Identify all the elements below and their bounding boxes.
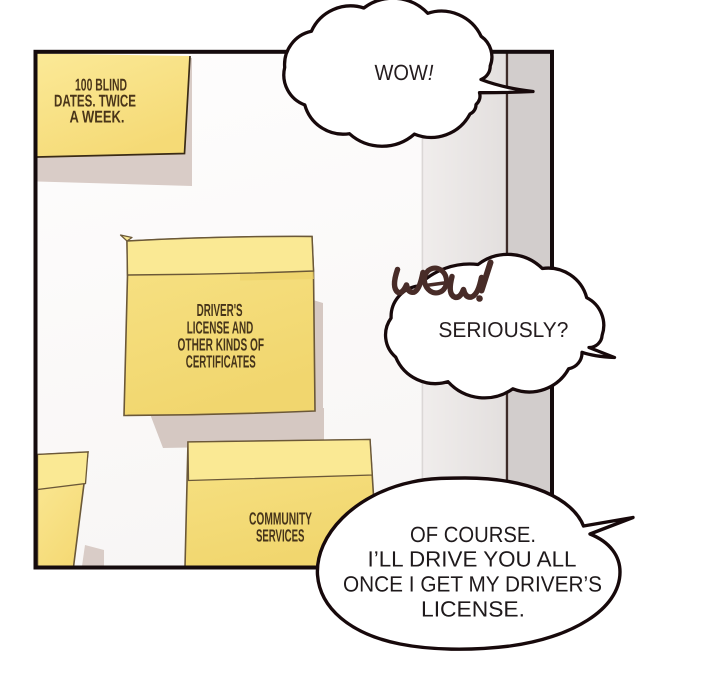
svg-text:CERTIFICATES: CERTIFICATES [186,352,256,372]
svg-text:SERVICES: SERVICES [256,526,305,546]
svg-text:I’LL DRIVE YOU ALL: I’LL DRIVE YOU ALL [368,547,577,572]
svg-text:SERIOUSLY?: SERIOUSLY? [438,318,568,342]
svg-text:OF COURSE.: OF COURSE. [410,522,536,547]
svg-text:LICENSE.: LICENSE. [421,597,525,622]
svg-text:WOW!: WOW! [375,60,434,85]
svg-text:ONCE I GET MY DRIVER’S: ONCE I GET MY DRIVER’S [343,572,602,597]
svg-text:A WEEK.: A WEEK. [70,108,125,127]
